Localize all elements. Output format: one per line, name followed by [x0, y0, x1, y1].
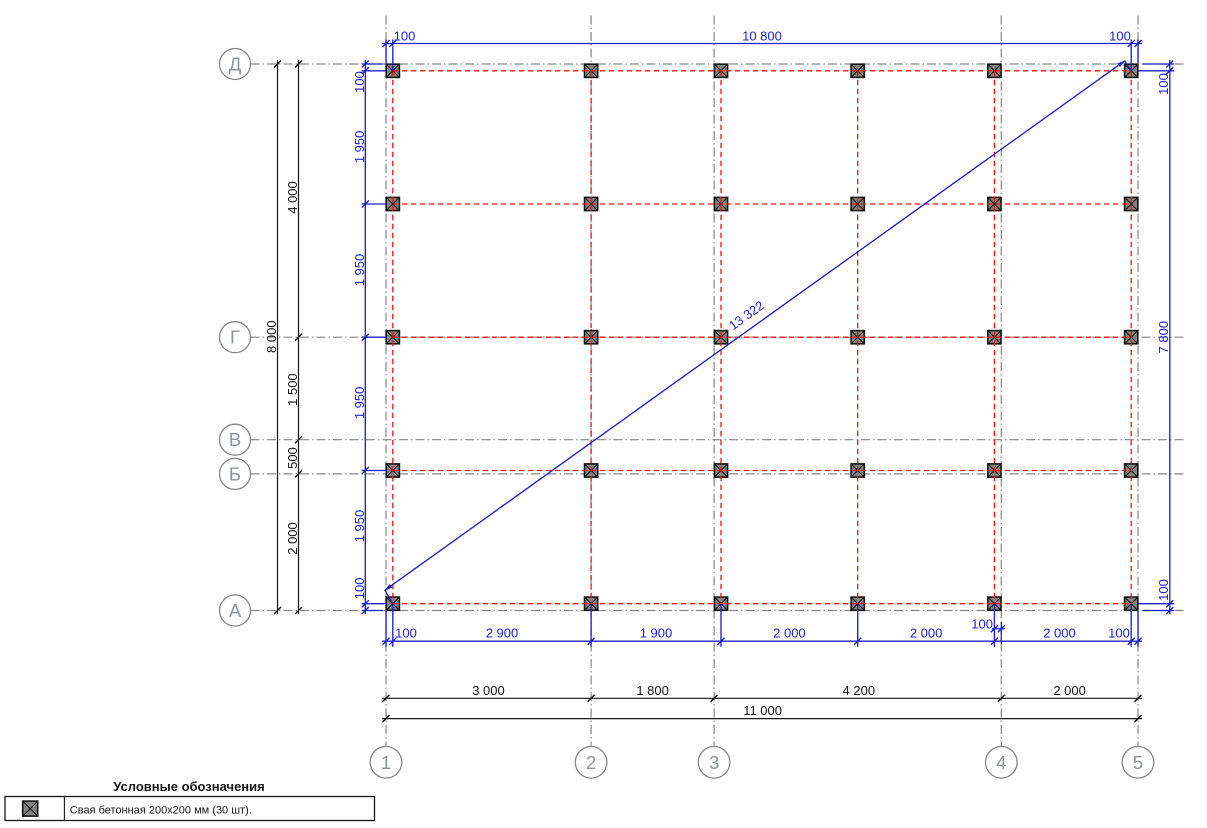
svg-text:1: 1 [381, 752, 391, 773]
svg-text:1 950: 1 950 [352, 254, 367, 287]
svg-text:3: 3 [709, 752, 719, 773]
svg-text:13 322: 13 322 [726, 298, 767, 333]
svg-text:2 000: 2 000 [1043, 626, 1076, 641]
svg-text:1 950: 1 950 [352, 510, 367, 543]
svg-text:10 800: 10 800 [742, 28, 782, 43]
svg-text:1 950: 1 950 [352, 131, 367, 164]
svg-text:500: 500 [285, 447, 300, 469]
svg-text:Г: Г [230, 327, 240, 348]
svg-text:100: 100 [1109, 28, 1131, 43]
svg-text:2 000: 2 000 [910, 626, 943, 641]
svg-text:100: 100 [1156, 73, 1171, 95]
svg-text:11 000: 11 000 [743, 703, 782, 718]
svg-text:4 000: 4 000 [285, 181, 300, 214]
svg-text:4 200: 4 200 [843, 683, 876, 698]
svg-text:1 800: 1 800 [636, 683, 669, 698]
svg-text:100: 100 [395, 626, 417, 641]
svg-text:100: 100 [352, 71, 367, 93]
svg-text:А: А [229, 600, 242, 621]
svg-text:Д: Д [229, 54, 242, 75]
svg-text:100: 100 [352, 578, 367, 600]
svg-text:Условные обозначения: Условные обозначения [113, 779, 264, 794]
svg-text:100: 100 [394, 28, 416, 43]
svg-text:100: 100 [971, 616, 993, 631]
svg-text:Свая бетонная 200х200 мм (30 ш: Свая бетонная 200х200 мм (30 шт). [70, 805, 252, 817]
svg-text:2 000: 2 000 [285, 522, 300, 555]
svg-text:1 900: 1 900 [640, 626, 673, 641]
svg-text:2 000: 2 000 [1053, 683, 1086, 698]
svg-text:В: В [229, 429, 241, 450]
svg-text:2 000: 2 000 [773, 626, 806, 641]
svg-text:100: 100 [1156, 579, 1171, 601]
svg-text:5: 5 [1133, 752, 1143, 773]
svg-text:Б: Б [229, 463, 241, 484]
svg-text:100: 100 [1108, 626, 1130, 641]
svg-text:4: 4 [996, 752, 1006, 773]
svg-text:3 000: 3 000 [472, 683, 505, 698]
svg-text:1 950: 1 950 [352, 387, 367, 420]
svg-text:2: 2 [586, 752, 596, 773]
svg-text:2 900: 2 900 [486, 626, 519, 641]
svg-text:7 800: 7 800 [1156, 321, 1171, 354]
svg-text:8 000: 8 000 [264, 320, 279, 353]
svg-text:1 500: 1 500 [285, 373, 300, 406]
